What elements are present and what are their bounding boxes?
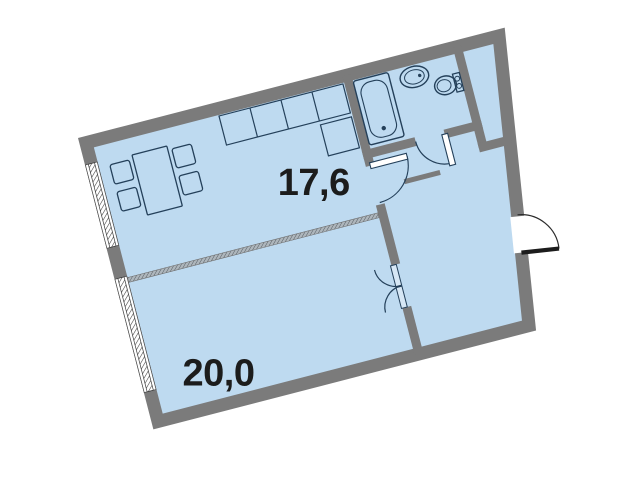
floor-plan-canvas: 17,6 20,0 (0, 0, 640, 480)
entrance-door (512, 207, 559, 258)
floor-plan-image: 17,6 20,0 (0, 0, 640, 480)
room-label-living: 17,6 (278, 162, 350, 204)
room-label-bedroom: 20,0 (183, 353, 255, 395)
